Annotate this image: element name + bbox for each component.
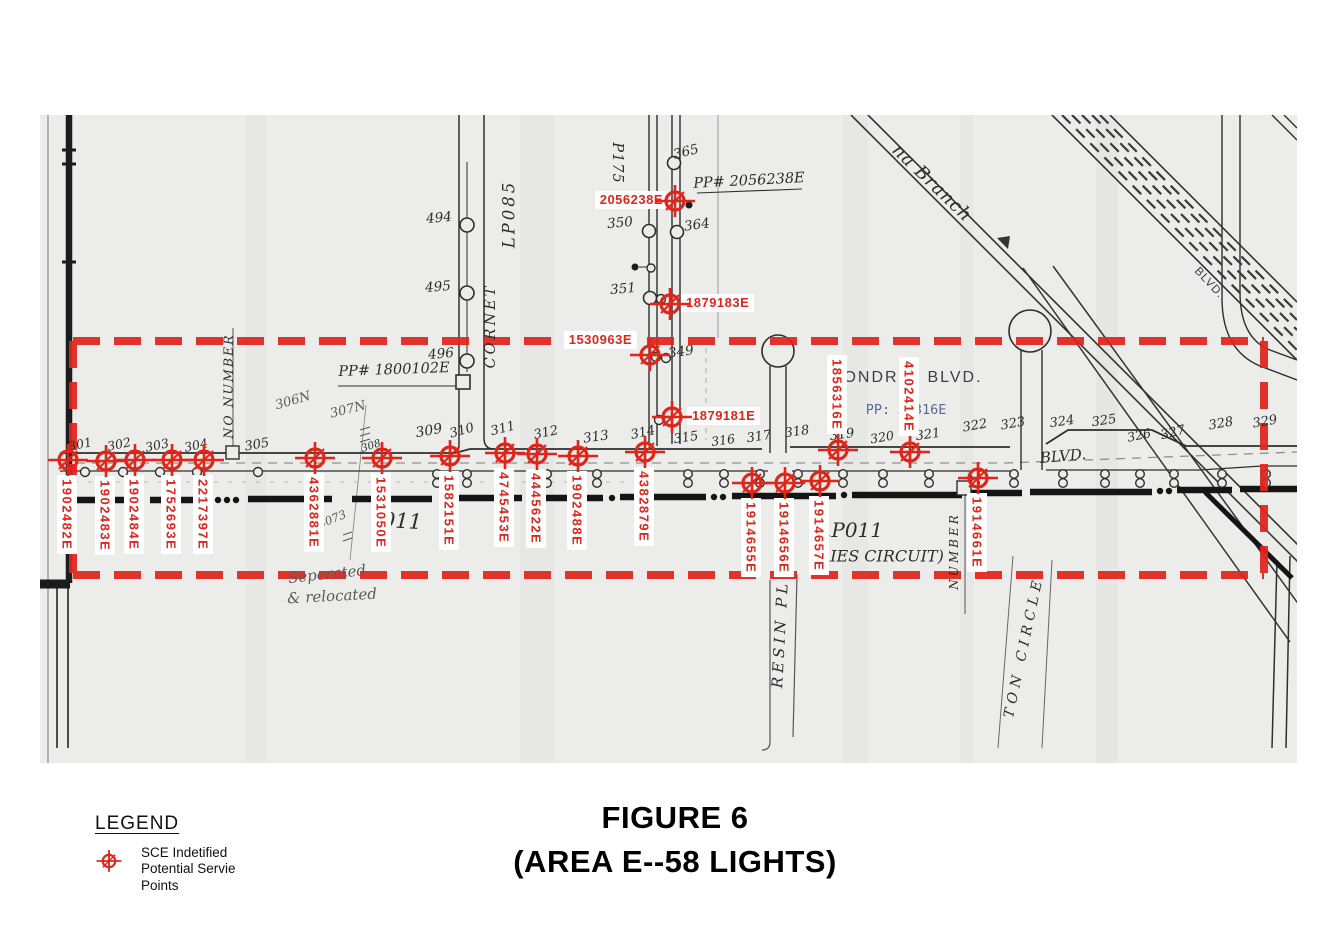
figure-title: FIGURE 6 (AREA E--58 LIGHTS) xyxy=(340,800,1010,880)
service-point-label: 1914657E xyxy=(809,496,829,575)
service-point-crosshair-icon xyxy=(95,847,123,875)
service-point-label: 1879183E xyxy=(681,294,754,312)
map-text: ONDR xyxy=(843,369,898,387)
service-point-label: 4745453E xyxy=(494,468,514,547)
map-text: NO NUMBER xyxy=(221,333,236,438)
map-text: 494 xyxy=(425,209,452,227)
legend-line-3: Points xyxy=(141,878,236,894)
map-text: LP085 xyxy=(500,180,519,249)
service-point-label: 1914655E xyxy=(741,498,761,577)
service-point-label: 1914661E xyxy=(967,493,987,572)
map-text: 350 xyxy=(606,214,633,232)
service-point-label: 1902484E xyxy=(124,475,144,554)
service-point-label: 4362881E xyxy=(304,473,324,552)
service-point-label: 1856316E xyxy=(827,355,847,434)
service-point-label: 1902483E xyxy=(95,476,115,555)
legend-line-1: SCE Indetified xyxy=(141,845,236,861)
service-point-label: 4445622E xyxy=(526,469,546,548)
service-point-label: 1914656E xyxy=(774,498,794,577)
map-text: P175 xyxy=(609,142,625,183)
service-point-label: 1530963E xyxy=(564,331,637,349)
figure-page: 3013023033043053083093103113123133143153… xyxy=(0,0,1340,938)
figure-title-line2: (AREA E--58 LIGHTS) xyxy=(340,844,1010,880)
map-text: BLVD. xyxy=(927,369,982,387)
service-point-label: 4382879E xyxy=(634,467,654,546)
service-point-label: 2217397E xyxy=(193,475,213,554)
legend: LEGEND SCE Indetified Potential Servie P… xyxy=(95,813,236,894)
service-point-label: 1752693E xyxy=(161,475,181,554)
legend-title: LEGEND xyxy=(95,813,236,835)
map-text: CORNET xyxy=(483,284,499,369)
scanned-map-artwork xyxy=(0,0,1340,938)
service-point-label: 1902488E xyxy=(567,471,587,550)
service-point-label: 1879181E xyxy=(687,407,760,425)
map-text: .P011 xyxy=(825,518,883,542)
figure-title-line1: FIGURE 6 xyxy=(340,800,1010,836)
service-point-label: 2056238E xyxy=(595,191,668,209)
service-point-label: 1531050E xyxy=(371,473,391,552)
map-text: PP: xyxy=(866,402,890,418)
legend-description: SCE Indetified Potential Servie Points xyxy=(141,845,236,894)
service-point-label: 4102414E xyxy=(899,357,919,436)
map-text: 351 xyxy=(609,280,636,298)
service-point-label: 1902482E xyxy=(57,475,77,554)
map-text: RIES CIRCUIT) xyxy=(818,547,944,566)
map-text: NUMBER xyxy=(947,512,961,590)
service-point-label: 1582151E xyxy=(439,471,459,550)
legend-line-2: Potential Servie xyxy=(141,861,236,877)
map-text: 495 xyxy=(424,278,451,296)
